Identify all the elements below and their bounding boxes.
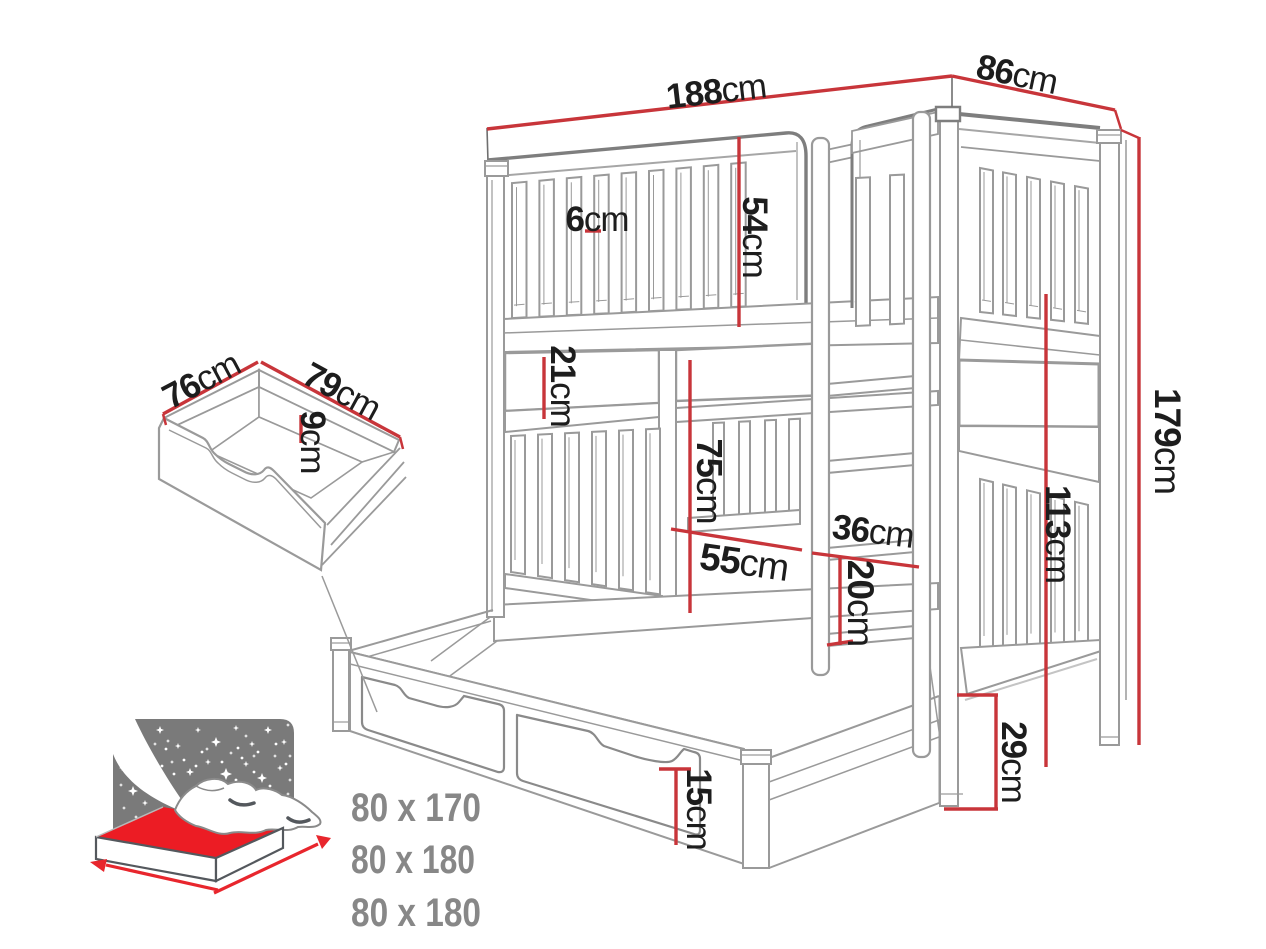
svg-text:80 x 180: 80 x 180 bbox=[351, 891, 481, 935]
svg-text:179cm: 179cm bbox=[1148, 388, 1189, 494]
svg-text:29cm: 29cm bbox=[995, 721, 1034, 803]
svg-text:20cm: 20cm bbox=[841, 560, 882, 646]
svg-text:6cm: 6cm bbox=[565, 200, 628, 239]
svg-text:15cm: 15cm bbox=[680, 768, 719, 850]
svg-text:80 x 180: 80 x 180 bbox=[351, 838, 475, 882]
svg-text:80 x 170: 80 x 170 bbox=[351, 786, 481, 830]
svg-text:113cm: 113cm bbox=[1039, 485, 1078, 583]
svg-text:54cm: 54cm bbox=[736, 196, 775, 278]
svg-text:9cm: 9cm bbox=[294, 410, 333, 473]
svg-text:75cm: 75cm bbox=[690, 438, 731, 523]
svg-text:21cm: 21cm bbox=[544, 345, 583, 427]
